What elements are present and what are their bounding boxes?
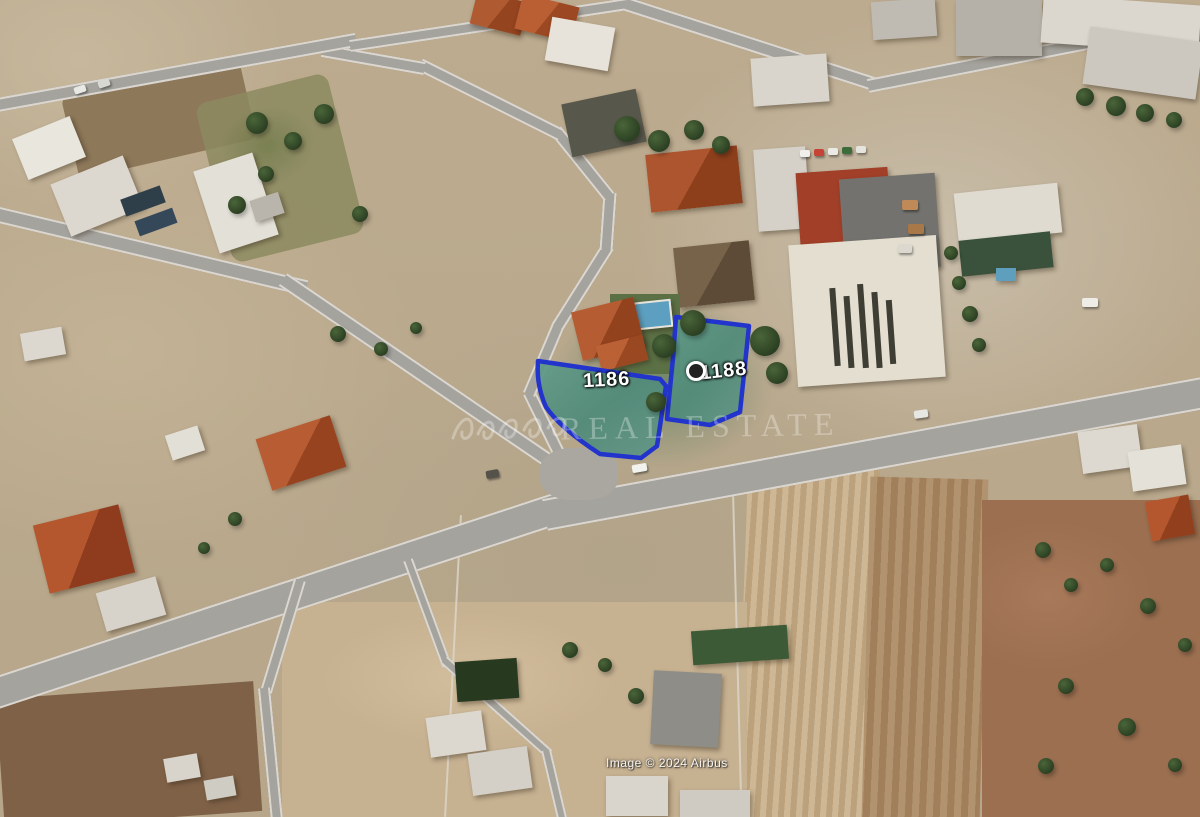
tree: [646, 392, 666, 412]
watermark-script-icon: [448, 398, 578, 453]
plot-label-1188: 1188: [699, 358, 749, 386]
plot-overlay: [0, 0, 1200, 817]
satellite-map: 1186 1188 REAL ESTATE Image © 2024 Airbu…: [0, 0, 1200, 817]
tree: [766, 362, 788, 384]
plot-label-1186: 1186: [582, 368, 631, 393]
tree: [680, 310, 706, 336]
imagery-attribution: Image © 2024 Airbus: [606, 756, 728, 770]
plot-1188-marker: [686, 361, 706, 381]
tree: [750, 326, 780, 356]
tree: [652, 334, 676, 358]
